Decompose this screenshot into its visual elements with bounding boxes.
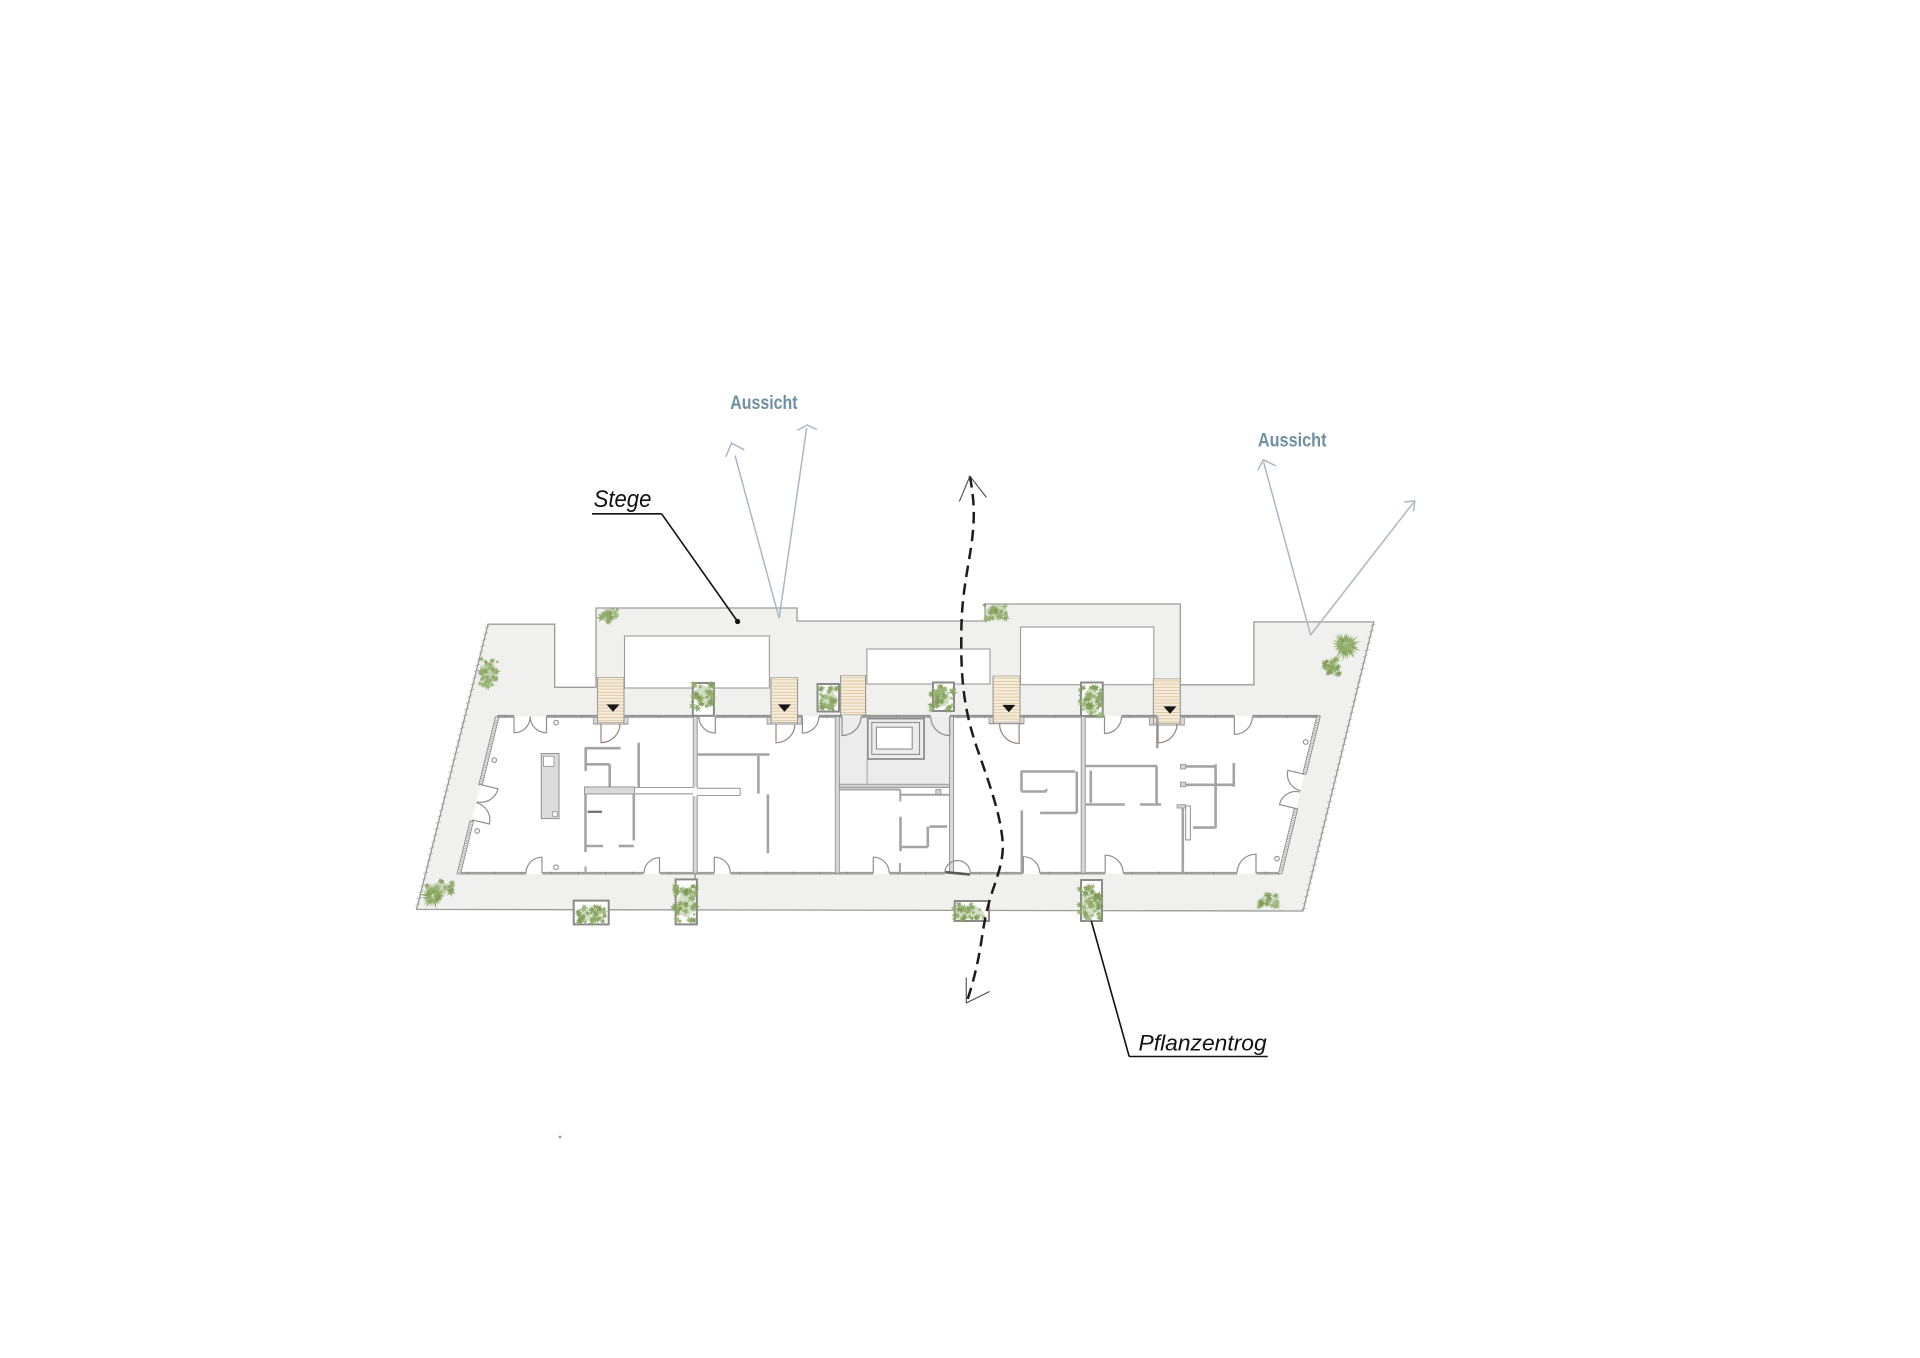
svg-text:Stege: Stege [594,486,652,513]
svg-text:Pflanzentrog: Pflanzentrog [1139,1030,1268,1055]
svg-text:Aussicht: Aussicht [1258,429,1327,451]
svg-text:Aussicht: Aussicht [730,392,798,414]
